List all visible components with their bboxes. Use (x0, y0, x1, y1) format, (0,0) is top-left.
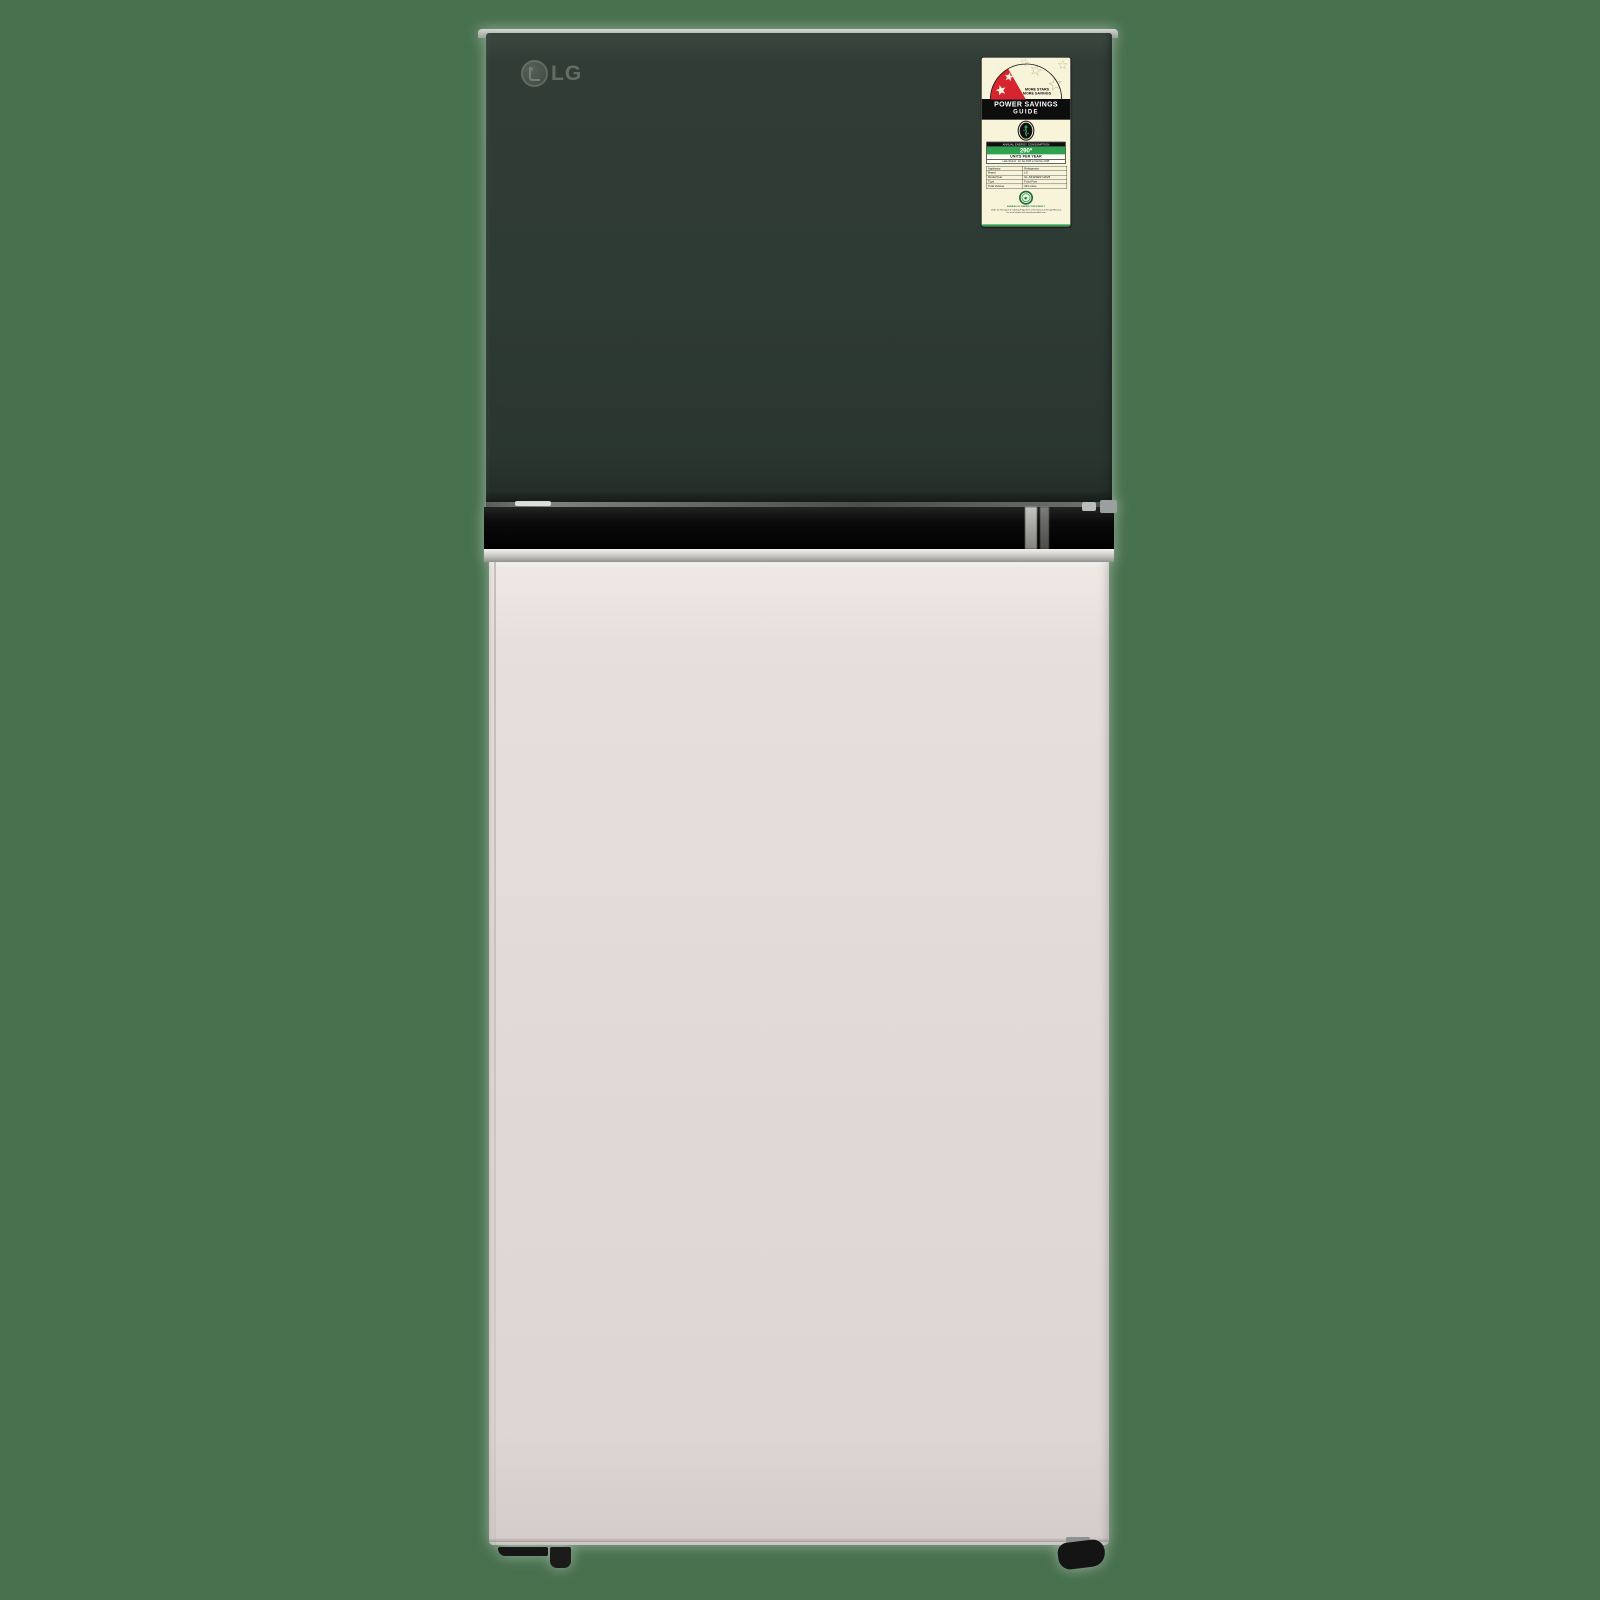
product-image-canvas: LG MORE STARS MORE SAVINGS POWER SAVINGS… (0, 0, 1600, 1600)
label-bottom-strip (982, 224, 1071, 226)
one-star-sector (990, 69, 1026, 100)
spec-table: Appliance Refrigerator Brand LG Model/Ye… (986, 166, 1067, 189)
energy-label: MORE STARS MORE SAVINGS POWER SAVINGS GU… (981, 57, 1071, 227)
lg-logo: LG (521, 60, 582, 87)
label-title: GUIDE (982, 108, 1071, 115)
door-hinge (1082, 502, 1096, 511)
center-black-band (484, 507, 1114, 549)
fridge-door (489, 562, 1109, 1545)
label-title-band: POWER SAVINGS GUIDE (982, 99, 1071, 120)
faint-star-icon (1020, 58, 1030, 67)
chrome-trim (484, 549, 1114, 562)
label-title: POWER SAVINGS (982, 101, 1071, 109)
band-reflection (1040, 507, 1049, 549)
star-rating-arch: MORE STARS MORE SAVINGS (982, 58, 1071, 100)
bee-seal-icon (1019, 191, 1033, 205)
tagline-line2: MORE SAVINGS (1023, 92, 1052, 96)
right-foot (1057, 1538, 1107, 1571)
annual-consumption-box: ANNUAL ENERGY CONSUMPTION 290* UNITS PER… (986, 142, 1065, 164)
label-period: Label Period : 1st Jan 2025 to 31st Dec … (987, 159, 1065, 163)
spec-label: Total Volume (987, 184, 1023, 188)
door-hinge (1100, 500, 1117, 513)
bee-emblem-icon (1018, 121, 1035, 141)
band-reflection (1025, 507, 1037, 549)
spec-value: 343 Litres (1023, 184, 1067, 188)
table-row: Total Volume 343 Litres (987, 184, 1067, 188)
consumption-value: 290* (987, 147, 1065, 155)
authority-text: BUREAU OF ENERGY EFFICIENCY (982, 205, 1071, 207)
divider-glint (515, 501, 551, 506)
lg-logo-text: LG (551, 62, 582, 86)
faint-star-icon (1058, 60, 1067, 68)
refrigerator (478, 29, 1118, 1571)
footnote-line2: For more details visit www.beestarlabel.… (985, 212, 1067, 215)
lg-face-icon (521, 60, 548, 87)
base-plinth (498, 1547, 548, 1556)
left-foot (550, 1547, 571, 1568)
